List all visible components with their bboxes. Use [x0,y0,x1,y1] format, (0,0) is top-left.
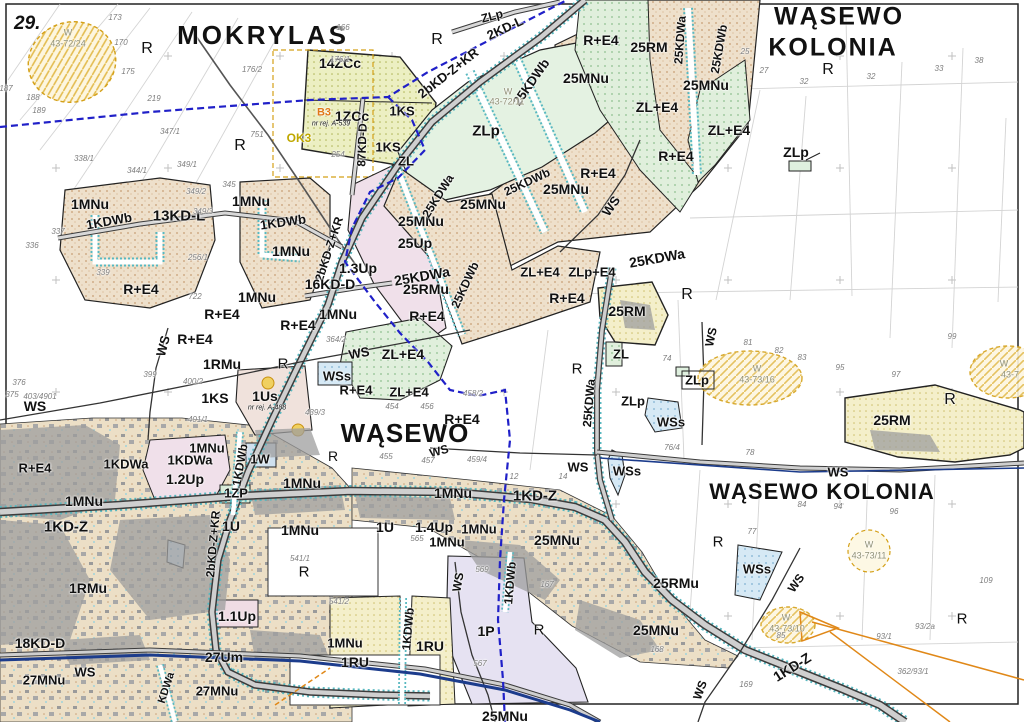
label-parcel: 96 [890,508,899,516]
label-zone: 25KDWb [709,24,729,75]
label-zone: 1MNu [281,523,319,537]
label-parcel: 345 [222,181,235,189]
label-zone: 1MNu [283,476,321,490]
label-zone: 1RMu [203,357,241,371]
map-canvas[interactable]: MOKRYLASWĄSEWOKOLONIAWĄSEWOWĄSEWO KOLONI… [0,0,1024,722]
label-zone: R+E4 [204,307,239,321]
label-site: 43-72/11 [490,98,525,107]
label-zone: R [141,41,153,57]
label-zone: 1KD-Z [513,489,557,504]
label-zone: 1MNu [71,197,109,211]
label-zone: 1KDWb [400,607,416,651]
label-parcel: 82 [775,347,784,355]
label-parcel: 99 [948,333,957,341]
map-labels-layer: MOKRYLASWĄSEWOKOLONIAWĄSEWOWĄSEWO KOLONI… [0,0,1024,722]
label-zone: 1KDWb [230,443,249,487]
label-zone: ZL+E4 [708,123,750,137]
label-zone: WSs [323,370,351,383]
label-parcel: 38 [975,57,984,65]
label-zone: 25RM [873,413,910,427]
label-zone: R [944,392,956,408]
label-zone: B3 [317,108,331,119]
label-zone: R [299,565,310,580]
label-zone: 1KDWb [502,561,518,605]
label-zone: R [534,623,545,638]
label-parcel: 175 [121,68,134,76]
label-place: WĄSEWO [774,5,904,30]
label-parcel: 336 [25,242,38,250]
label-parcel: 375 [5,391,18,399]
label-parcel: 254 [331,151,344,159]
label-parcel: 349/3 [193,208,213,216]
label-parcel: 95 [836,364,845,372]
label-zone: R [431,32,443,48]
label-zone: WS [450,571,465,592]
label-parcel: 567 [473,660,486,668]
label-parcel: 189 [32,107,45,115]
label-parcel: 344/1 [127,167,147,175]
label-zone: ZL+E4 [382,347,424,361]
label-zone: 27MNu [23,674,66,687]
label-zone: ZL+E4 [636,100,678,114]
label-zone: R [822,62,834,78]
label-zone: R+E4 [580,166,615,180]
label-site: W [504,88,513,97]
label-zone: 87KD-D [355,123,369,167]
label-zone: 1MNu [434,486,472,500]
label-zone: 25MNu [534,533,580,547]
label-zone: 1KDWb [85,211,133,232]
label-zone: R+E4 [340,384,373,397]
label-zone: WS [568,461,589,474]
label-zone: 25MNu [543,182,589,196]
label-parcel: 541/1 [290,555,310,563]
label-zone: WS [828,466,849,479]
label-zone: 25MNu [633,623,679,637]
label-zone: 1MNu [429,536,464,549]
label-parcel: 400/2 [183,378,203,386]
label-parcel: 97 [892,371,901,379]
label-parcel: 439/3 [305,409,325,417]
label-zone: R [278,357,289,372]
label-zone: WS [786,572,807,595]
label-zone: WS [691,679,709,701]
label-parcel: 74 [663,355,672,363]
label-place: MOKRYLAS [177,22,349,48]
label-site: W [865,541,874,550]
label-parcel: 376 [12,379,25,387]
label-zone: R [681,287,693,303]
label-parcel: 338/1 [74,155,94,163]
label-zone: 1MNu [232,194,270,208]
label-parcel: 170 [114,39,127,47]
label-zone: 1U [376,520,394,534]
label-zone: 1.1Up [218,609,256,623]
label-parcel: 219 [147,95,160,103]
label-parcel: 403/4901 [23,393,56,401]
label-zone: R+E4 [549,291,584,305]
label-zone: 1KS [375,141,400,154]
label-zone: 25MNu [398,214,444,228]
label-zone: 1ZP [224,487,248,500]
label-zone: ZLp [783,145,809,159]
label-zone: 1.3Up [339,261,377,275]
label-zone: 1RMu [69,581,107,595]
label-place: WĄSEWO KOLONIA [709,481,934,503]
label-parcel: 32 [867,73,876,81]
label-zone: R [713,535,724,550]
label-zone: R+E4 [280,318,315,332]
label-parcel: 347/1 [160,128,180,136]
label-zone: 1MNu [319,307,357,321]
label-zone: 1RU [416,639,444,653]
label-zone: 1KD-Z [44,520,88,535]
label-parcel: 27 [760,67,769,75]
label-parcel: 78 [746,449,755,457]
label-zone: 27Um [205,650,243,664]
label-zone: WS [600,194,623,219]
label-zone: 25KDWa [581,378,597,427]
label-parcel: 83 [798,354,807,362]
label-parcel: 541/2 [329,598,349,606]
label-zone: 25RM [608,304,645,318]
label-parcel: 81 [744,339,753,347]
label-zone: WS [348,345,371,361]
label-zone: WS [154,334,172,358]
label-parcel: 12 [510,473,519,481]
label-zone: R [328,449,338,463]
label-zone: R+E4 [123,282,158,296]
label-parcel: 176/1 [330,56,350,64]
label-parcel: 85 [777,632,786,640]
label-parcel: 93/1 [876,633,892,641]
label-zone: OK3 [287,132,312,144]
label-place: KOLONIA [768,36,897,61]
label-zone: ZL [613,348,629,361]
label-zone: 25RMu [403,282,449,296]
sheet-number: 29. [14,13,40,35]
label-parcel: 33 [935,65,944,73]
label-site: 43-73/10 [769,625,805,634]
label-parcel: 77 [748,528,757,536]
label-parcel: 458/2 [463,390,483,398]
label-zone: 1KS [389,105,414,118]
label-parcel: 76/4 [664,444,680,452]
label-zone: 25MNu [460,197,506,211]
label-zone: 1RU [341,655,369,669]
label-parcel: 349/2 [186,188,206,196]
label-zone: 1KD-Z [771,650,813,684]
label-parcel: 364/2 [326,336,346,344]
label-zone: 25MNu [563,71,609,85]
label-zone: 16KD-D [305,277,356,291]
label-zone: R+E4 [177,332,212,346]
label-parcel: 32 [800,78,809,86]
label-zone: ZLp [685,374,709,387]
label-parcel: 176/2 [242,66,262,74]
label-parcel: 399 [143,371,156,379]
label-zone: R [957,612,968,627]
label-zone: R+E4 [19,462,52,475]
label-site: 43-73/11 [852,552,887,561]
label-zone: 18KD-D [15,636,66,650]
label-zone: 25Up [398,236,432,250]
label-zone: 1W [250,453,270,466]
label-zone: R+E4 [583,33,618,47]
label-zone: 27MNu [196,685,239,698]
label-parcel: 454 [385,403,398,411]
label-zone: 1.2Up [166,472,204,486]
label-zone: ZL [398,155,414,168]
label-parcel: 349/1 [177,161,197,169]
label-parcel: 751 [250,131,263,139]
label-site: W [753,365,762,374]
label-zone: nr rej. A-539 [312,121,350,128]
label-zone: 1MNu [238,290,276,304]
label-parcel: 339 [96,269,109,277]
label-zone: 25MNu [683,78,729,92]
label-parcel: 187 [0,85,13,93]
label-zone: 1Us [252,389,278,403]
label-zone: R+E4 [658,149,693,163]
label-site: W [64,29,73,38]
label-zone: 1P [477,624,494,638]
label-parcel: 25 [741,48,750,56]
label-parcel: 173 [108,14,121,22]
label-parcel: 459/4 [467,456,487,464]
label-zone: KDWa [157,671,177,705]
label-parcel: 167 [540,581,553,589]
label-parcel: 401/1 [188,416,208,424]
label-zone: 1MNu [272,244,310,258]
label-zone: WS [703,326,719,347]
label-zone: R+E4 [409,309,444,323]
label-parcel: 188 [26,94,39,102]
label-parcel: 457 [421,457,434,465]
label-parcel: 337 [51,228,64,236]
label-zone: ZL+E4 [520,266,559,279]
label-parcel: 94 [834,503,843,511]
label-zone: 2bKD-Z+KR [204,510,222,578]
label-zone: ZLp [472,124,500,139]
label-zone: nr rej. A-488 [248,405,286,412]
label-parcel: 565 [410,535,423,543]
label-parcel: 84 [798,501,807,509]
label-zone: R+E4 [444,412,479,426]
label-zone: 25KDWb [449,260,481,310]
label-zone: WSs [743,563,771,576]
label-parcel: 93/2a [915,623,935,631]
label-parcel: 256/1 [188,254,208,262]
label-zone: 25KDWa [628,246,686,270]
label-parcel: 14 [559,473,568,481]
label-parcel: 169 [739,681,752,689]
label-zone: 1U [222,519,240,533]
label-zone: WSs [613,465,641,478]
label-zone: 25RMu [653,576,699,590]
label-zone: 1MNu [65,494,103,508]
label-zone: R [572,362,583,377]
label-zone: ZLp [621,395,645,408]
label-zone: 1KS [201,391,228,405]
label-zone: R [234,138,246,154]
label-zone: 1MNu [189,442,224,455]
label-parcel: 166 [336,24,349,32]
label-zone: 1.4Up [415,520,453,534]
label-site: W [782,614,791,623]
label-site: 43-7 [1001,371,1019,380]
label-parcel: 456 [420,403,433,411]
label-parcel: 168 [650,646,663,654]
label-zone: 25MNu [482,709,528,722]
label-parcel: 722 [188,293,201,301]
label-zone: 1MNu [461,523,496,536]
label-zone: ZL+E4 [389,386,428,399]
label-zone: 25KDWa [672,16,687,65]
label-site: 43-73/16 [739,376,775,385]
label-zone: 1KDWa [103,458,148,471]
label-site: 43-72/24 [50,40,86,49]
label-zone: 1MNu [327,637,362,650]
label-parcel: 569 [475,566,488,574]
label-zone: 1KDWb [259,212,307,231]
label-zone: WS [24,399,47,413]
label-parcel: 455 [379,453,392,461]
label-zone: WSs [657,416,685,429]
label-parcel: 362/93/1 [897,668,928,676]
label-zone: 2bKD-Z+KR [415,46,480,101]
label-parcel: 109 [979,577,992,585]
label-zone: WS [75,666,96,679]
label-site: W [1000,360,1009,369]
label-zone: ZLp+E4 [568,266,615,279]
label-zone: 25RM [630,40,667,54]
